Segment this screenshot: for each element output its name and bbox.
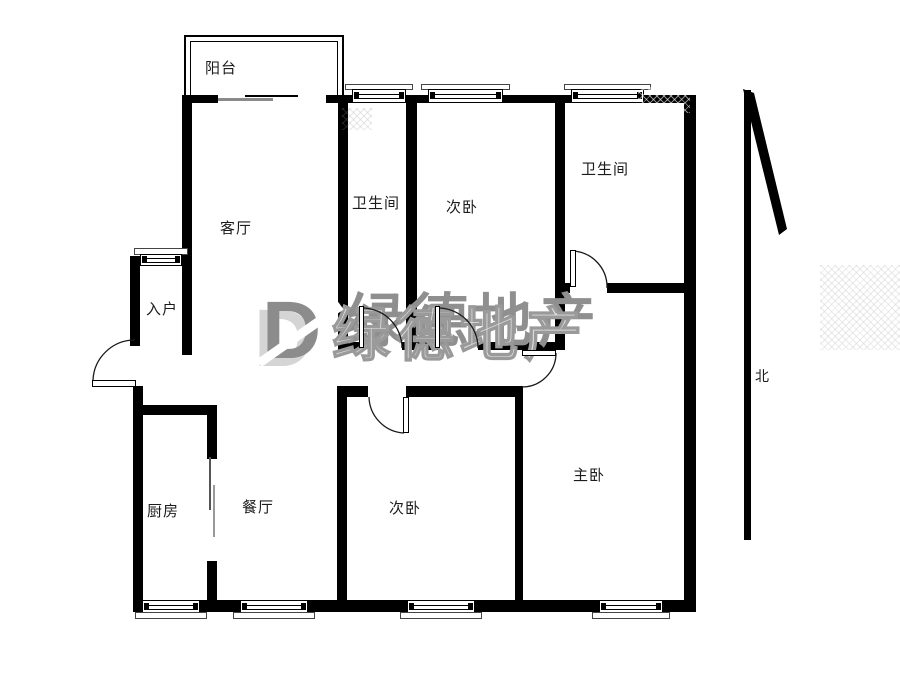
room-label-dining-room: 餐厅 [242, 500, 274, 515]
door-arcs-and-compass [0, 0, 900, 678]
bedroom-top-door-arc [438, 308, 478, 348]
north-arrow-staff [744, 90, 751, 540]
floorplan-canvas: D D 绿德地产 绿德地产 阳台 客厅 入户 卫生间 次卧 卫生间 厨房 餐厅 … [0, 0, 900, 678]
entry-door-arc [93, 340, 135, 380]
bathroom-right-door-arc [572, 251, 607, 288]
room-label-bedroom-bottom: 次卧 [389, 501, 421, 516]
bathroom-right-door-leaf [570, 250, 576, 287]
bathroom-middle-door-arc [362, 308, 402, 348]
bedroom-bottom-door-leaf [403, 397, 409, 433]
master-bedroom-door-leaf [522, 350, 556, 356]
master-bedroom-door-arc [522, 353, 556, 387]
room-label-kitchen: 厨房 [147, 504, 179, 519]
bedroom-bottom-door-arc [369, 397, 404, 433]
room-label-living-room: 客厅 [220, 221, 252, 236]
bedroom-top-door-leaf [435, 306, 440, 348]
room-label-bedroom-top: 次卧 [446, 200, 478, 215]
room-label-master-bedroom: 主卧 [573, 468, 605, 483]
bathroom-middle-door-leaf [359, 306, 364, 348]
compass-north-label: 北 [755, 369, 770, 383]
entry-door-leaf [92, 380, 136, 387]
room-label-bathroom-middle: 卫生间 [352, 196, 400, 211]
room-label-balcony: 阳台 [205, 61, 237, 76]
room-label-entry: 入户 [146, 302, 178, 317]
room-label-bathroom-right: 卫生间 [581, 162, 629, 177]
